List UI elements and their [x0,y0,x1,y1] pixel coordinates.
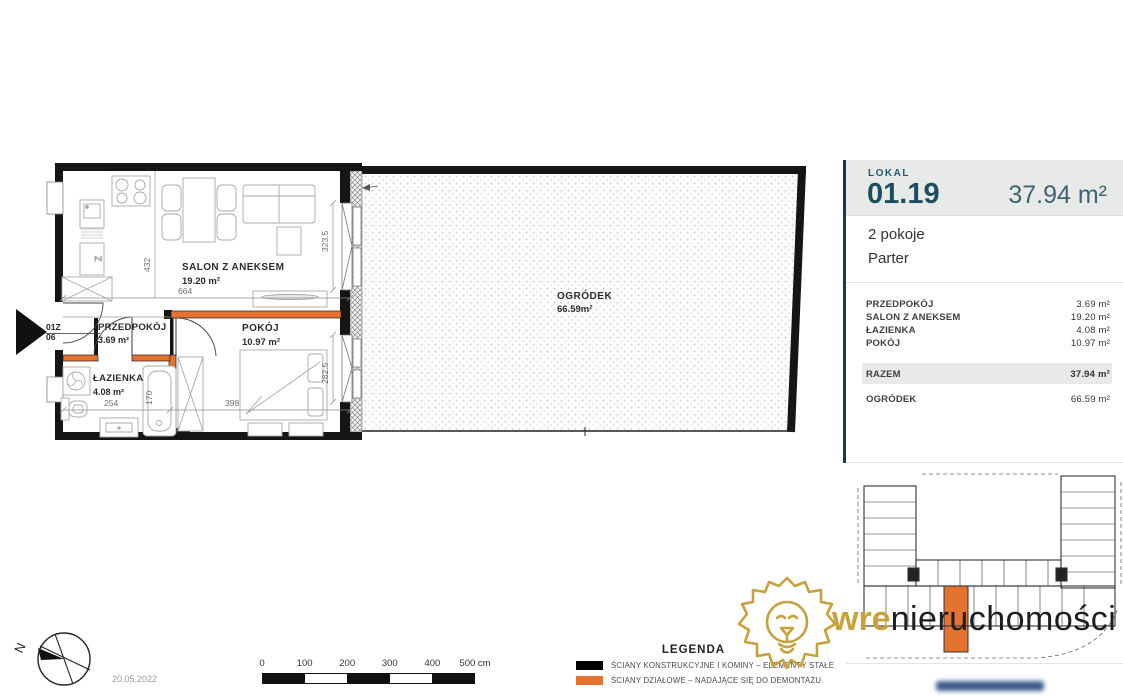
date-label: 20.05.2022 [112,674,157,684]
washbasin [100,418,138,437]
garden-label: OGRÓDEK [557,289,612,302]
brand-wre: wre [832,600,891,638]
bench [248,423,282,436]
room-row: SALON Z ANEKSEM 19.20 m² [866,312,1110,325]
stove [112,176,150,206]
room-row: PRZEDPOKÓJ 3.69 m² [866,299,1110,312]
divider [846,663,1123,664]
room-area: 10.97 m² [1071,338,1110,349]
unit-total-area: 37.94 m² [1008,181,1107,210]
przedpokoj-area: 3.69 m² [98,335,129,345]
divider [846,462,1123,463]
legend-swatch-structural [576,661,603,670]
toilet [61,398,87,420]
floorplan-sheet: OGRÓDEK 66.59m² [0,0,1123,697]
scale-tick: 300 [382,658,398,669]
kitchen-sink [80,200,104,238]
lazienka-area: 4.08 m² [93,387,124,397]
kitchen-counter: Z [80,243,104,275]
scale-bar: 0 100 200 300 400 500 cm [262,658,475,688]
salon-label: SALON Z ANEKSEM [182,262,284,273]
legend-item-label: ŚCIANY DZIAŁOWE – NADAJĄCE SIĘ DO DEMONT… [611,676,821,685]
scale-tick: 100 [297,658,313,669]
room-area: 4.08 m² [1076,325,1110,336]
total-label: RAZEM [866,369,901,380]
room-name: PRZEDPOKÓJ [866,299,933,310]
hall-wardrobe [62,277,112,301]
pokoj-door-arc [176,318,216,356]
room-area: 19.20 m² [1071,312,1110,323]
przedpokoj-label: PRZEDPOKÓJ [98,321,166,333]
legend-swatch-partition [576,676,603,685]
total-value: 37.94 m² [1070,369,1110,380]
lazienka-label: ŁAZIENKA [93,373,143,384]
entrance-code-1: 01Z [46,322,61,332]
scale-tick: 400 [424,658,440,669]
scale-tick: 200 [339,658,355,669]
room-area: 3.69 m² [1076,299,1110,310]
dim-2825: 282.5 [320,362,330,384]
side-table [277,227,301,255]
room-name: SALON Z ANEKSEM [866,312,960,323]
compass: N [14,626,134,696]
room-name: ŁAZIENKA [866,325,916,336]
divider [846,215,1123,216]
legend-item: ŚCIANY DZIAŁOWE – NADAJĄCE SIĘ DO DEMONT… [576,676,836,685]
floor-label: Parter [868,250,909,267]
north-label: N [14,640,29,655]
rooms-count: 2 pokoje [868,226,925,243]
bed [240,350,327,420]
svg-text:Z: Z [93,256,103,262]
dim-170: 170 [144,391,154,405]
pokoj-label: POKÓJ [242,321,279,334]
scale-tick: 0 [259,658,264,669]
garden-row: OGRÓDEK 66.59 m² [866,394,1110,407]
furniture: Z [61,176,327,437]
garden-value: 66.59 m² [1071,394,1110,405]
entrance: 01Z 06 [16,309,100,355]
lion-logo-icon [737,574,837,674]
room-row: POKÓJ 10.97 m² [866,338,1110,351]
compass-needle-icon [38,648,64,660]
pokoj-area: 10.97 m² [242,337,280,348]
scale-numbers: 0 100 200 300 400 500 cm [262,658,475,670]
salon-area: 19.20 m² [182,276,220,287]
room-name: POKÓJ [866,338,900,349]
redacted-caption [936,681,1044,691]
total-row: RAZEM 37.94 m² [866,369,1110,382]
tv-cabinet [253,291,327,307]
room-row: ŁAZIENKA 4.08 m² [866,325,1110,338]
dim-432: 432 [142,258,152,272]
dim-254: 254 [104,398,118,408]
dim-398: 398 [225,398,239,408]
garden-label: OGRÓDEK [866,394,917,405]
washing-machine [63,367,90,395]
dim-664: 664 [178,286,192,296]
sofa [243,185,315,223]
brand-nieruchomosci: nieruchomości [891,600,1117,638]
unit-number: 01.19 [867,178,940,211]
entrance-arrow-icon [16,309,47,355]
garden-area-value: 66.59m² [557,304,592,315]
brand-logo-text: wrenieruchomości [832,600,1116,639]
divider [846,282,1123,283]
bedroom-wardrobe [178,357,203,431]
garden-area: OGRÓDEK 66.59m² [362,166,806,436]
dim-3235: 323.5 [320,230,330,252]
bench-2 [289,423,323,436]
scale-tick: 500 cm [459,658,490,669]
dining-table [162,178,236,242]
scale-bar-strip [262,673,475,684]
unit-header: LOKAL 01.19 37.94 m² [846,160,1123,215]
